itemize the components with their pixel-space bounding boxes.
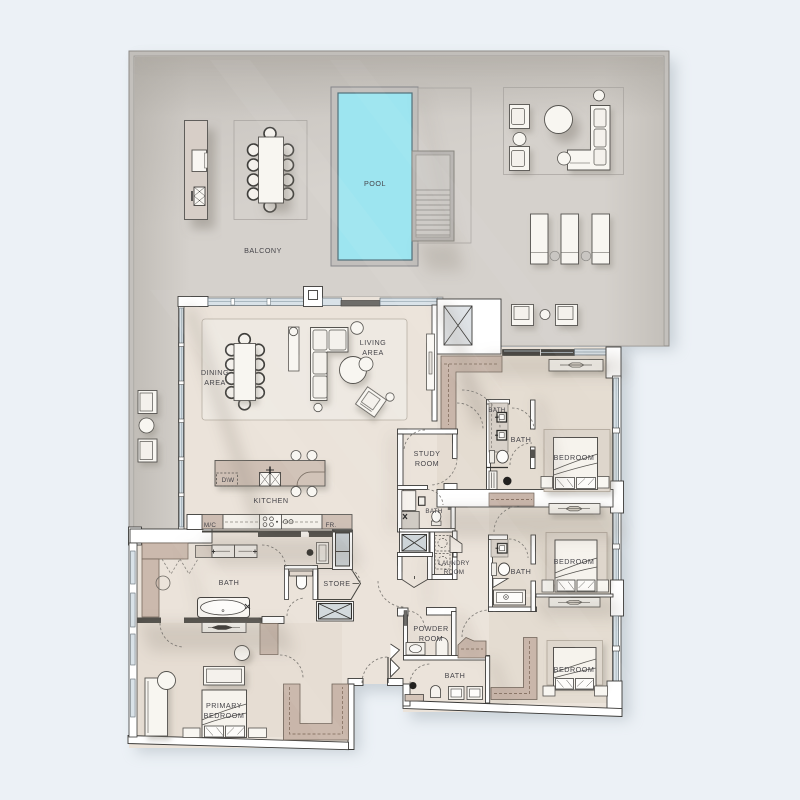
svg-text:BEDROOM: BEDROOM xyxy=(204,711,245,720)
svg-text:ROOM: ROOM xyxy=(419,634,443,643)
svg-text:STORE: STORE xyxy=(323,579,350,588)
svg-text:M/C: M/C xyxy=(204,522,216,529)
svg-text:BEDROOM: BEDROOM xyxy=(554,665,595,674)
svg-text:FR.: FR. xyxy=(326,522,337,529)
svg-text:DINING: DINING xyxy=(201,368,229,377)
svg-text:POWDER: POWDER xyxy=(413,624,448,633)
svg-text:KITCHEN: KITCHEN xyxy=(253,496,288,505)
svg-text:LIVING: LIVING xyxy=(360,338,387,347)
svg-text:BEDROOM: BEDROOM xyxy=(554,453,595,462)
svg-text:BATH: BATH xyxy=(445,671,466,680)
svg-text:BATH: BATH xyxy=(425,508,442,515)
svg-text:STUDY: STUDY xyxy=(414,449,441,458)
svg-text:PRIMARY: PRIMARY xyxy=(206,701,242,710)
svg-text:LAUNDRY: LAUNDRY xyxy=(438,560,470,567)
svg-text:BATH: BATH xyxy=(488,407,505,414)
svg-text:BATH: BATH xyxy=(511,567,532,576)
svg-text:AREA: AREA xyxy=(362,348,384,357)
svg-text:ROOM: ROOM xyxy=(444,569,464,576)
svg-text:ROOM: ROOM xyxy=(415,459,439,468)
svg-text:BATH: BATH xyxy=(219,578,240,587)
svg-text:POOL: POOL xyxy=(364,179,386,188)
svg-text:BALCONY: BALCONY xyxy=(244,246,282,255)
svg-text:D\W: D\W xyxy=(222,477,235,484)
svg-text:AREA: AREA xyxy=(204,378,226,387)
svg-text:BATH: BATH xyxy=(511,435,532,444)
svg-text:BEDROOM: BEDROOM xyxy=(554,557,595,566)
